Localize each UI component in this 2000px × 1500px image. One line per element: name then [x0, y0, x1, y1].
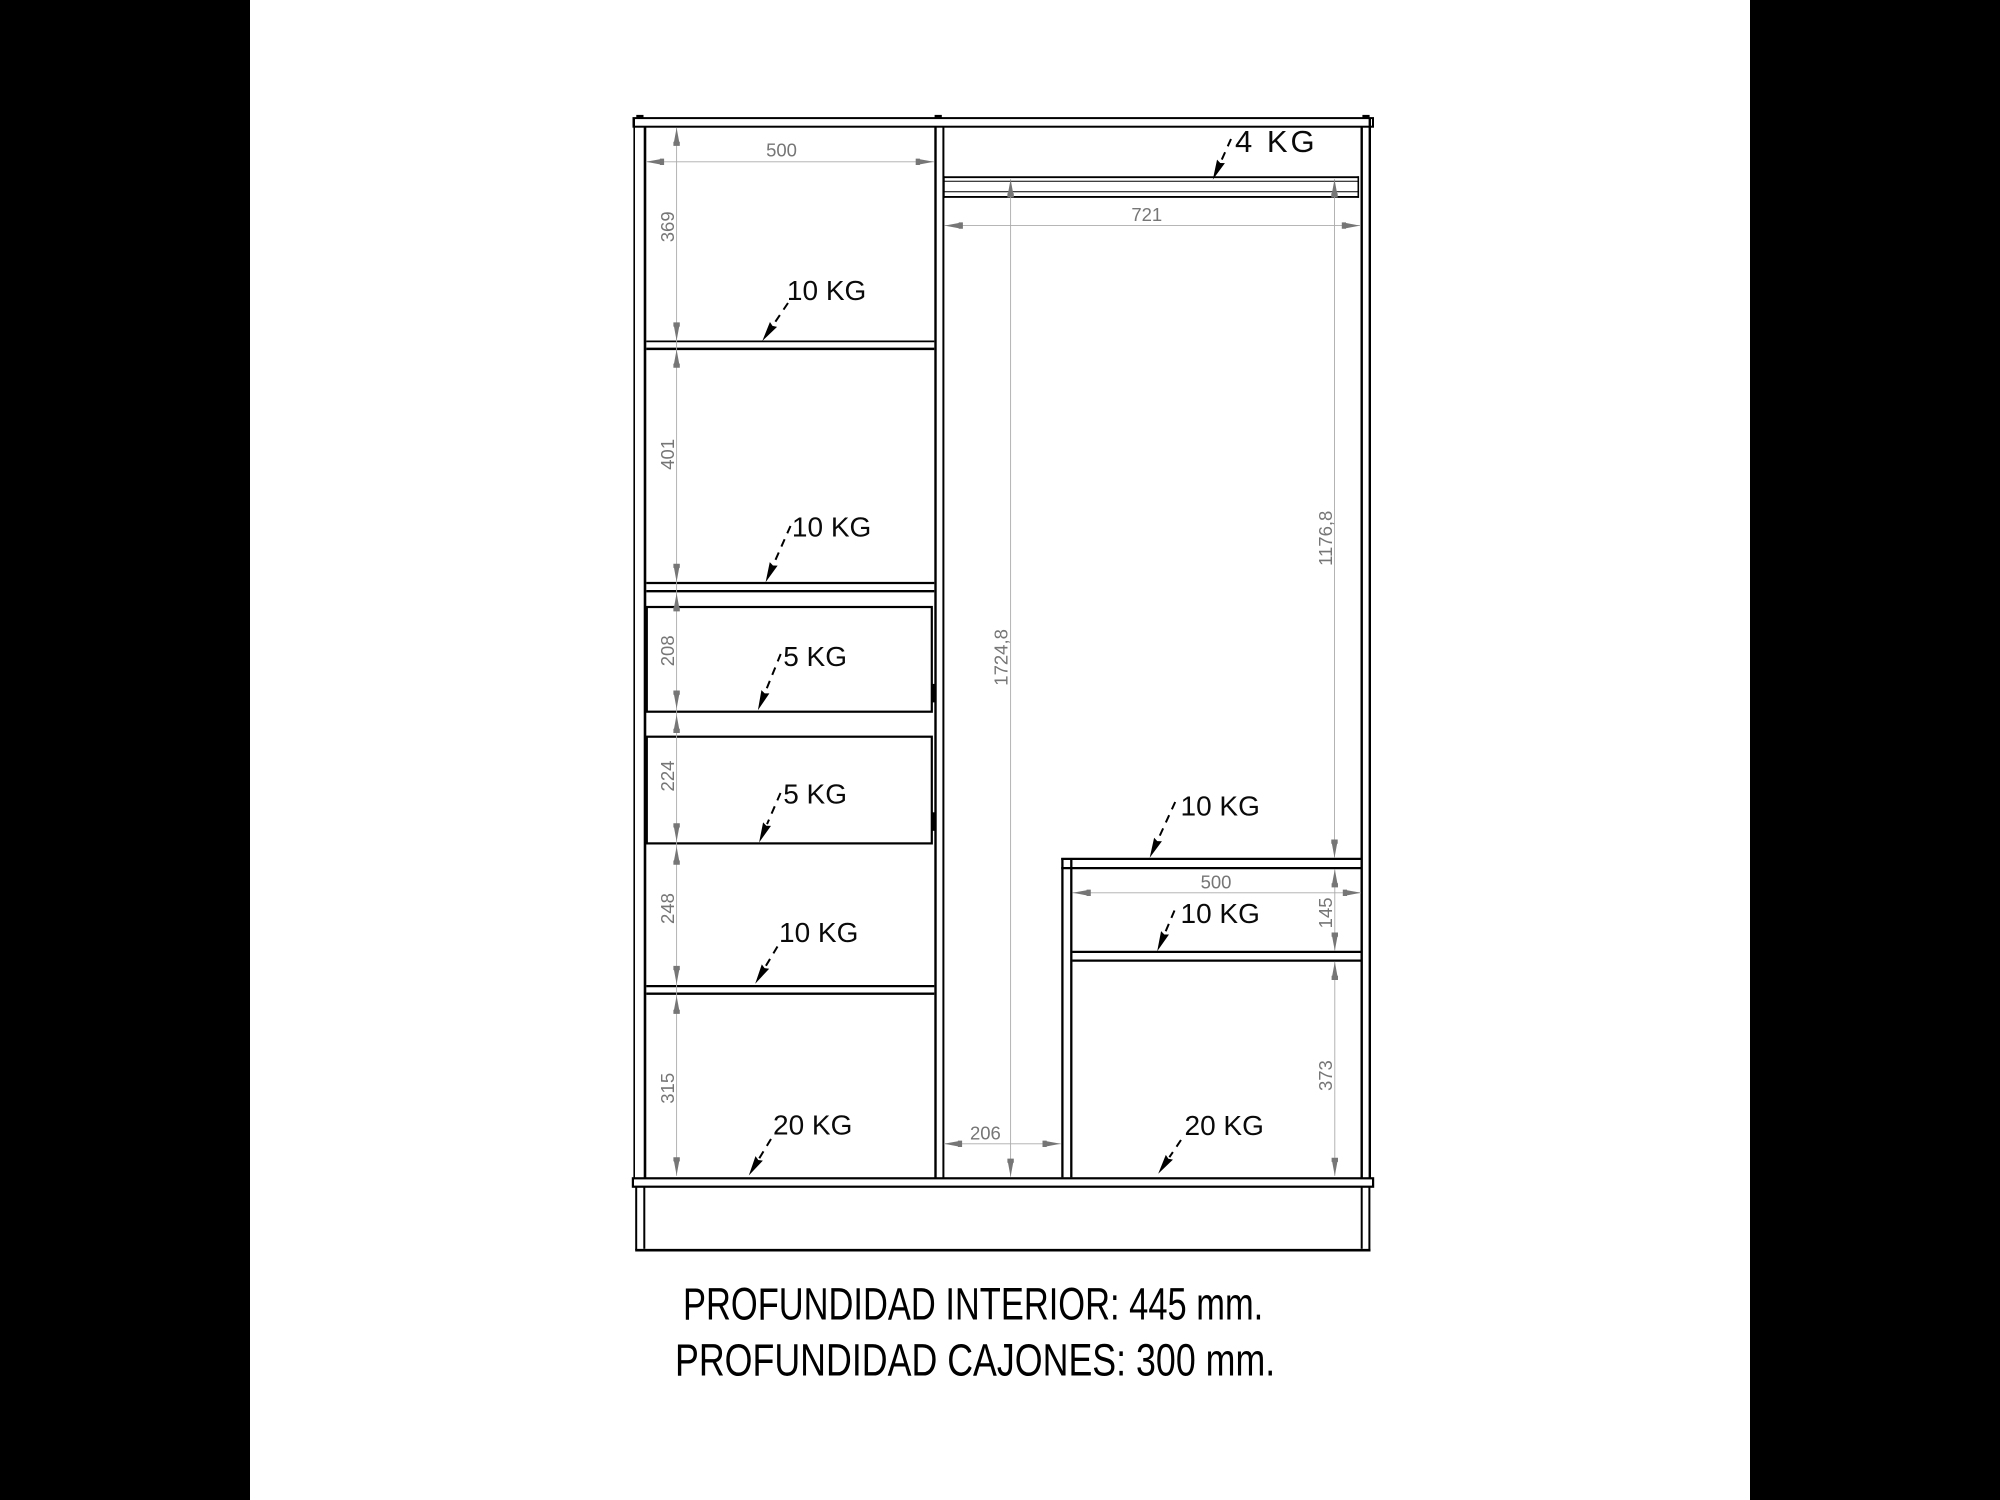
svg-text:206: 206 — [970, 1123, 1001, 1144]
svg-text:5 KG: 5 KG — [783, 779, 847, 810]
svg-text:248: 248 — [657, 893, 678, 924]
svg-text:315: 315 — [657, 1073, 678, 1104]
svg-text:PROFUNDIDAD INTERIOR: 445 mm.: PROFUNDIDAD INTERIOR: 445 mm. — [683, 1280, 1263, 1329]
svg-text:145: 145 — [1315, 897, 1336, 928]
svg-text:10 KG: 10 KG — [792, 511, 871, 542]
svg-text:224: 224 — [657, 761, 678, 792]
svg-text:373: 373 — [1315, 1060, 1336, 1091]
svg-text:10 KG: 10 KG — [779, 917, 858, 948]
svg-text:500: 500 — [1201, 871, 1232, 892]
svg-text:20 KG: 20 KG — [773, 1110, 852, 1141]
svg-text:PROFUNDIDAD CAJONES: 300 mm.: PROFUNDIDAD CAJONES: 300 mm. — [675, 1335, 1275, 1386]
svg-text:10 KG: 10 KG — [787, 275, 866, 306]
svg-text:401: 401 — [657, 439, 678, 470]
svg-text:1724,8: 1724,8 — [991, 629, 1012, 686]
svg-text:208: 208 — [657, 635, 678, 666]
svg-text:369: 369 — [657, 211, 678, 242]
svg-text:20 KG: 20 KG — [1185, 1110, 1264, 1141]
svg-text:500: 500 — [766, 140, 797, 161]
svg-text:5 KG: 5 KG — [783, 641, 847, 672]
svg-text:10 KG: 10 KG — [1181, 791, 1260, 822]
svg-text:4 KG: 4 KG — [1235, 124, 1318, 159]
svg-text:721: 721 — [1131, 204, 1162, 225]
svg-text:10 KG: 10 KG — [1181, 898, 1260, 929]
svg-text:1176,8: 1176,8 — [1315, 511, 1336, 566]
